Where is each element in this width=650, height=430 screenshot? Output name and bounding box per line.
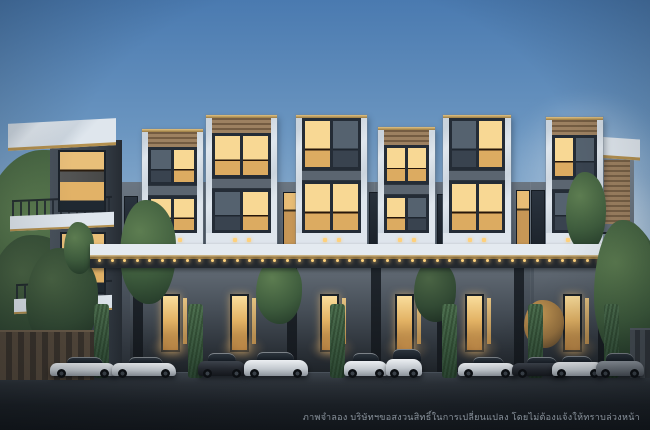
canopy-downlight <box>198 259 201 262</box>
downlight <box>337 238 341 242</box>
canopy-downlight <box>161 259 164 262</box>
canopy-downlight <box>136 259 139 262</box>
tower-spandrel <box>212 178 271 189</box>
canopy-downlight <box>511 259 514 262</box>
downlight <box>482 238 486 242</box>
parked-car-sports <box>50 346 116 378</box>
canopy-downlight <box>186 259 189 262</box>
canopy-downlight <box>261 259 264 262</box>
canopy-downlight <box>561 259 564 262</box>
window-pane <box>479 121 503 167</box>
tower-windows-floor2 <box>212 189 271 234</box>
tower-windows-floor2 <box>384 195 429 234</box>
window-pane <box>151 150 171 182</box>
window-pane <box>576 138 594 176</box>
canopy-downlight <box>461 259 464 262</box>
canopy-downlight <box>98 259 101 262</box>
window-pane <box>387 198 405 231</box>
canopy-downlight <box>536 259 539 262</box>
left-unit-window-upper <box>58 150 106 212</box>
car-wheel <box>464 369 473 378</box>
hedge-column <box>330 304 345 378</box>
downlight <box>398 238 402 242</box>
window-pane <box>174 150 194 182</box>
canopy-downlight <box>336 259 339 262</box>
canopy-downlight <box>323 259 326 262</box>
canopy-downlight <box>123 259 126 262</box>
tower-windows-floor3 <box>302 118 361 170</box>
window-pane <box>215 192 240 231</box>
window-pane <box>243 192 268 231</box>
recessed-wall-window <box>531 190 545 250</box>
tower-spandrel <box>302 170 361 181</box>
townhouse-tower <box>206 115 277 248</box>
tower-frame <box>449 118 505 233</box>
car-wheel <box>557 369 566 378</box>
window-pane <box>305 184 330 230</box>
parked-car-sports <box>458 346 516 378</box>
car-wheel <box>630 369 639 378</box>
car-wheel <box>293 369 302 378</box>
tower-frame <box>212 118 271 233</box>
car-wheel <box>518 369 527 378</box>
townhome-render-scene: ภาพจำลอง บริษัทฯขอสงวนสิทธิ์ในการเปลี่ยน… <box>0 0 650 430</box>
canopy-downlight <box>498 259 501 262</box>
tower-windows-floor2 <box>449 181 505 233</box>
canopy-downlight <box>111 259 114 262</box>
canopy-downlight <box>236 259 239 262</box>
canopy-downlight <box>211 259 214 262</box>
recessed-wall-window <box>283 192 297 249</box>
tower-wood-panel <box>552 120 597 135</box>
downlight <box>323 238 327 242</box>
window-pane <box>333 121 358 167</box>
recessed-wall-window <box>516 190 530 250</box>
tower-spandrel <box>148 185 197 196</box>
canopy-downlight <box>573 259 576 262</box>
downlight <box>233 238 237 242</box>
car-wheel <box>375 369 384 378</box>
downlight <box>468 238 472 242</box>
canopy-downlight <box>411 259 414 262</box>
townhouse-tower <box>443 115 511 248</box>
hedge-column <box>442 304 457 378</box>
car-wheel <box>203 369 212 378</box>
canopy-downlight <box>223 259 226 262</box>
tower-windows-floor3 <box>212 133 271 178</box>
car-wheel <box>161 369 170 378</box>
canopy-downlight <box>423 259 426 262</box>
canopy-downlight <box>523 259 526 262</box>
downlight <box>178 238 182 242</box>
gold-canopy-band <box>90 244 606 268</box>
canopy-downlight <box>273 259 276 262</box>
canopy-downlight <box>473 259 476 262</box>
tower-windows-floor2 <box>302 181 361 233</box>
tower-wood-panel <box>384 130 429 145</box>
parked-car-sedan <box>344 346 388 378</box>
left-unit-roof-canopy <box>8 118 116 151</box>
window-pane <box>452 121 476 167</box>
car-wheel <box>409 369 418 378</box>
window-pane <box>243 136 268 175</box>
canopy-downlight <box>486 259 489 262</box>
canopy-downlight <box>398 259 401 262</box>
car-wheel <box>118 369 127 378</box>
tower-wood-panel <box>148 132 197 147</box>
thai-disclaimer-text: ภาพจำลอง บริษัทฯขอสงวนสิทธิ์ในการเปลี่ยน… <box>303 410 640 424</box>
window-pane <box>333 184 358 230</box>
window-pane <box>452 184 476 230</box>
canopy-downlight <box>173 259 176 262</box>
townhouse-tower <box>296 115 367 248</box>
tower-frame <box>302 118 361 233</box>
canopy-downlight <box>448 259 451 262</box>
car-wheel <box>348 369 357 378</box>
parked-car-suv <box>386 346 422 378</box>
canopy-downlight <box>386 259 389 262</box>
window-pane <box>479 184 503 230</box>
car-wheel <box>501 369 510 378</box>
tower-frame <box>384 130 429 233</box>
canopy-downlight <box>361 259 364 262</box>
tower-windows-floor3 <box>384 145 429 184</box>
car-wheel <box>601 369 610 378</box>
canopy-downlight <box>148 259 151 262</box>
window-pane <box>305 121 330 167</box>
car-wheel <box>390 369 399 378</box>
parked-car-sports <box>112 346 176 378</box>
car-wheel <box>57 369 66 378</box>
tower-windows-floor3 <box>552 135 597 179</box>
canopy-downlight <box>586 259 589 262</box>
car-wheel <box>250 369 259 378</box>
townhouse-tower <box>378 127 435 248</box>
window-pane <box>555 138 573 176</box>
canopy-downlight <box>298 259 301 262</box>
window-pane <box>408 198 426 231</box>
tower-windows-floor3 <box>148 147 197 185</box>
car-wheel <box>232 369 241 378</box>
canopy-downlight <box>373 259 376 262</box>
right-unit-wood-panel <box>604 160 630 224</box>
front-tree <box>566 172 606 252</box>
canopy-downlight <box>436 259 439 262</box>
tower-spandrel <box>449 170 505 181</box>
canopy-downlight <box>248 259 251 262</box>
canopy-downlight <box>286 259 289 262</box>
tower-wood-panel <box>212 118 271 133</box>
downlight <box>412 238 416 242</box>
canopy-downlight <box>348 259 351 262</box>
canopy-downlight <box>311 259 314 262</box>
parked-car-sedan <box>596 346 644 378</box>
window-pane <box>215 136 240 175</box>
window-pane <box>387 148 405 181</box>
canopy-downlight <box>548 259 551 262</box>
window-pane <box>174 199 194 231</box>
parked-car-luxury <box>244 346 308 378</box>
tower-spandrel <box>384 184 429 195</box>
parked-car-sedan <box>198 346 246 378</box>
tower-windows-floor3 <box>449 118 505 170</box>
window-pane <box>408 148 426 181</box>
downlight <box>566 238 570 242</box>
downlight <box>247 238 251 242</box>
car-wheel <box>100 369 109 378</box>
